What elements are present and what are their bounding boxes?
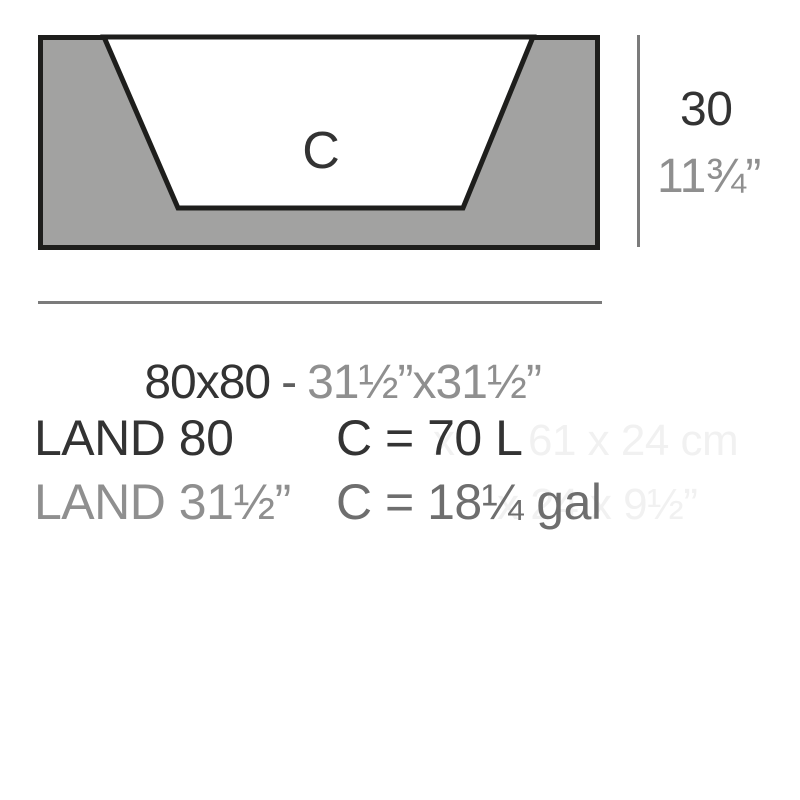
product-model-inches: LAND 31½” — [34, 477, 291, 527]
width-value-cm: 80x80 — [144, 356, 270, 409]
width-dimension-line — [38, 301, 602, 304]
product-spec-sheet: C 30 11¾” 80x80-31½”x31½” x 61 x 24 cm x… — [0, 0, 800, 800]
height-value-cm: 30 — [680, 86, 732, 134]
width-separator: - — [281, 356, 296, 409]
cross-section-diagram: C — [35, 32, 605, 254]
capacity-gallons: C = 18¼ gal — [336, 477, 602, 527]
height-dimension-line — [637, 35, 640, 247]
cavity-label: C — [302, 122, 340, 180]
height-value-inches: 11¾” — [657, 153, 761, 201]
capacity-liters: C = 70 L — [336, 413, 522, 463]
ghost-text-fragment: 61 x 24 cm — [528, 419, 738, 463]
product-model-cm: LAND 80 — [34, 413, 233, 463]
width-value-inches: 31½”x31½” — [307, 356, 541, 409]
